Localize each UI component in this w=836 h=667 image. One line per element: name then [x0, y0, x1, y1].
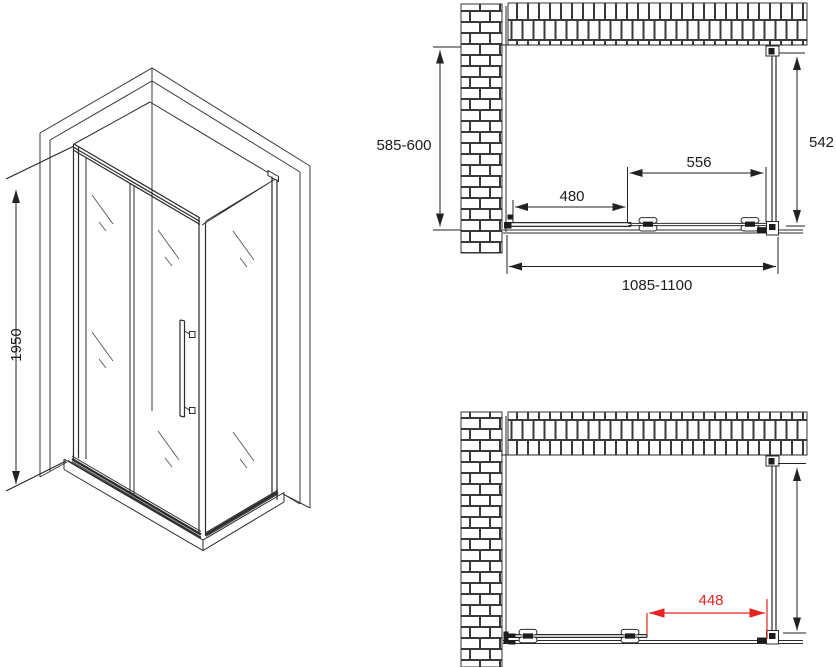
door-handle: [180, 320, 195, 417]
dim-label-side-panel: 542: [809, 134, 834, 151]
enclosure-frame: [72, 102, 279, 537]
perspective-view: 1950: [6, 68, 310, 551]
dimension-width-1085-1100: 1085-1100: [507, 235, 778, 294]
dim-label-fixed-panel: 480: [559, 188, 584, 205]
dimension-opening-448: 448: [647, 592, 767, 639]
door-rollers: [639, 218, 759, 231]
dimension-side-542: 542: [779, 53, 834, 226]
dim-label-sliding-door: 556: [686, 154, 711, 171]
plan-view-closed: 585-600 542 556 480 1085-1100: [376, 3, 834, 294]
plan-view-open: 448: [461, 412, 807, 667]
dimension-depth-585-600: 585-600: [376, 47, 461, 230]
dim-label-overall-width: 1085-1100: [622, 277, 693, 294]
back-walls: [40, 68, 310, 508]
dim-label-height: 1950: [8, 328, 25, 361]
brick-wall-back-top: [508, 3, 807, 45]
brick-wall-back-bottom: [508, 412, 807, 455]
dimension-door-556: 556: [628, 154, 767, 222]
dimension-side-unlabeled: [778, 464, 806, 634]
dimension-fixed-480: 480: [513, 188, 626, 222]
brick-wall-side-top: [461, 4, 502, 253]
brick-wall-side-bottom: [461, 412, 502, 667]
glass-reflection-marks: [92, 195, 254, 468]
dim-label-clear-opening: 448: [698, 592, 723, 609]
shower-enclosure-drawing: 1950: [0, 0, 836, 667]
dim-label-depth: 585-600: [376, 137, 431, 154]
technical-drawing-canvas: 1950: [0, 0, 836, 667]
